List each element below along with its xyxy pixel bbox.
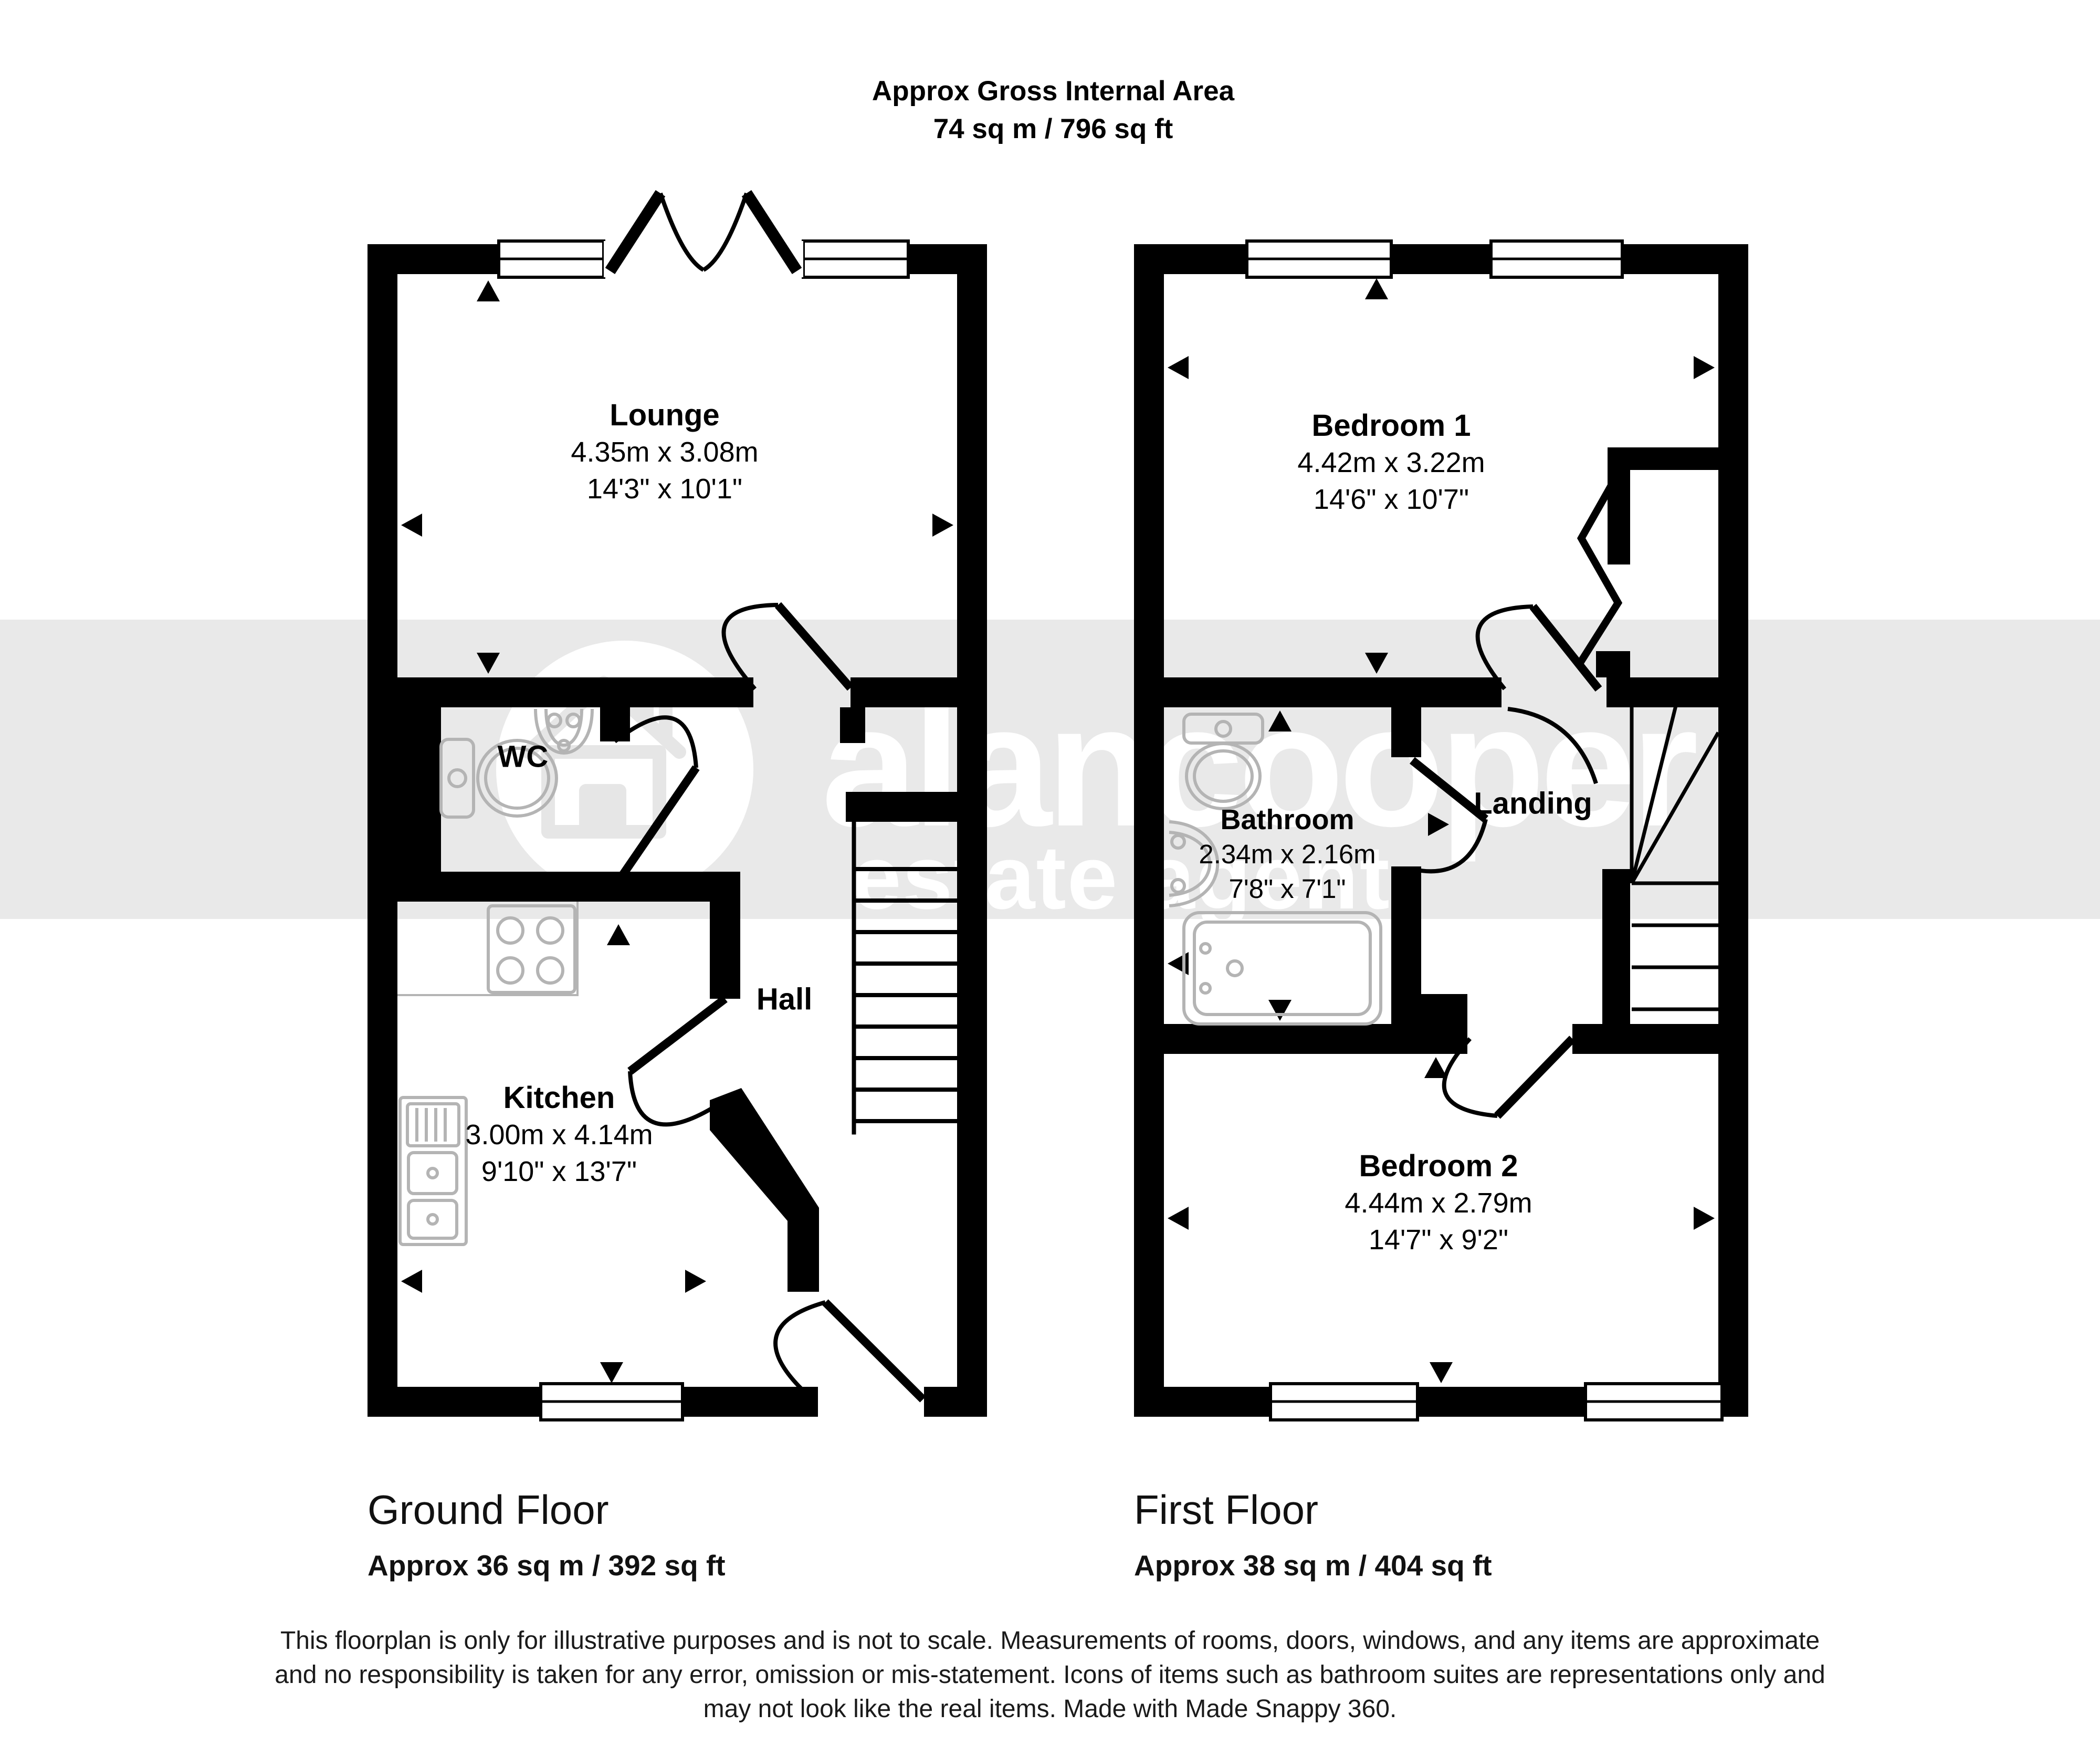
floorplan-drawing (0, 0, 2100, 1746)
room-metric: 4.44m x 2.79m (1345, 1185, 1532, 1221)
window-icon (803, 241, 908, 277)
window-icon (1585, 1384, 1722, 1420)
window-icon (1270, 1384, 1417, 1420)
floorplan-page: alancooper estate agent (0, 0, 2100, 1746)
title-line-1: Approx Gross Internal Area (872, 72, 1234, 110)
room-imperial: 14'3" x 10'1" (571, 471, 758, 507)
room-metric: 4.35m x 3.08m (571, 434, 758, 471)
page-title: Approx Gross Internal Area 74 sq m / 796… (872, 72, 1234, 148)
room-name: Kitchen (465, 1080, 653, 1116)
dimension-arrow-down-icon (477, 653, 500, 674)
disclaimer-line-3: may not look like the real items. Made w… (275, 1692, 1825, 1726)
room-label-wc: WC (498, 739, 549, 775)
dimension-arrow-down-icon (600, 1362, 623, 1383)
dimension-arrow-down-icon (1365, 653, 1388, 674)
toilet-icon (1184, 714, 1263, 809)
door-arc-icon (775, 1302, 923, 1399)
title-line-2: 74 sq m / 796 sq ft (872, 110, 1234, 148)
ground-floor-plan (367, 193, 987, 1420)
room-imperial: 7'8" x 7'1" (1199, 872, 1375, 906)
floor-label: Ground Floor (367, 1486, 726, 1534)
window-icon (541, 1384, 682, 1420)
room-label-lounge: Lounge 4.35m x 3.08m 14'3" x 10'1" (571, 397, 758, 507)
room-metric: 3.00m x 4.14m (465, 1116, 653, 1153)
window-icon (1247, 241, 1391, 277)
room-name: Bedroom 1 (1297, 407, 1485, 444)
window-icon (499, 241, 604, 277)
ground-floor-caption: Ground Floor Approx 36 sq m / 392 sq ft (367, 1486, 726, 1582)
dimension-arrow-right-icon (1694, 1207, 1715, 1230)
dimension-arrow-up-icon (1365, 278, 1388, 299)
stairs-icon (852, 822, 957, 1134)
dimension-arrow-up-icon (607, 924, 630, 945)
dimension-arrow-right-icon (932, 514, 953, 537)
room-name: Bedroom 2 (1345, 1148, 1532, 1185)
room-imperial: 9'10" x 13'7" (465, 1153, 653, 1190)
room-label-bedroom-2: Bedroom 2 4.44m x 2.79m 14'7" x 9'2" (1345, 1148, 1532, 1258)
room-label-hall: Hall (757, 982, 812, 1017)
winder-stairs-icon (1632, 680, 1718, 1009)
dimension-arrow-right-icon (685, 1270, 706, 1293)
french-doors-icon (604, 193, 803, 277)
room-name: Bathroom (1199, 802, 1375, 837)
dimension-arrow-up-icon (1424, 1057, 1447, 1078)
dimension-arrow-left-icon (1168, 1207, 1189, 1230)
room-label-bedroom-1: Bedroom 1 4.42m x 3.22m 14'6" x 10'7" (1297, 407, 1485, 518)
dimension-arrow-down-icon (1430, 1362, 1453, 1383)
room-metric: 4.42m x 3.22m (1297, 444, 1485, 481)
window-icon (1491, 241, 1622, 277)
disclaimer-line-1: This floorplan is only for illustrative … (275, 1624, 1825, 1658)
room-imperial: 14'7" x 9'2" (1345, 1221, 1532, 1258)
room-name: Lounge (571, 397, 758, 434)
dimension-arrow-right-icon (1694, 356, 1715, 379)
dimension-arrow-left-icon (401, 514, 422, 537)
dimension-arrow-up-icon (477, 280, 500, 301)
first-floor-caption: First Floor Approx 38 sq m / 404 sq ft (1134, 1486, 1492, 1582)
dimension-arrow-up-icon (1268, 710, 1291, 731)
door-arc-icon (723, 605, 850, 689)
floor-area: Approx 36 sq m / 392 sq ft (367, 1549, 726, 1582)
dimension-arrow-left-icon (1168, 356, 1189, 379)
room-label-landing: Landing (1474, 786, 1592, 821)
dimension-arrow-right-icon (1428, 813, 1449, 836)
room-label-kitchen: Kitchen 3.00m x 4.14m 9'10" x 13'7" (465, 1080, 653, 1190)
floor-area: Approx 38 sq m / 404 sq ft (1134, 1549, 1492, 1582)
hob-icon (488, 906, 575, 992)
dimension-arrow-left-icon (401, 1270, 422, 1293)
dimension-arrow-down-icon (1268, 1000, 1291, 1021)
door-arc-icon (615, 717, 696, 886)
room-metric: 2.34m x 2.16m (1199, 837, 1375, 872)
disclaimer: This floorplan is only for illustrative … (275, 1624, 1825, 1726)
floor-label: First Floor (1134, 1486, 1492, 1534)
disclaimer-line-2: and no responsibility is taken for any e… (275, 1658, 1825, 1692)
room-imperial: 14'6" x 10'7" (1297, 481, 1485, 518)
kitchen-sink-icon (400, 1097, 466, 1245)
room-label-bathroom: Bathroom 2.34m x 2.16m 7'8" x 7'1" (1199, 802, 1375, 906)
